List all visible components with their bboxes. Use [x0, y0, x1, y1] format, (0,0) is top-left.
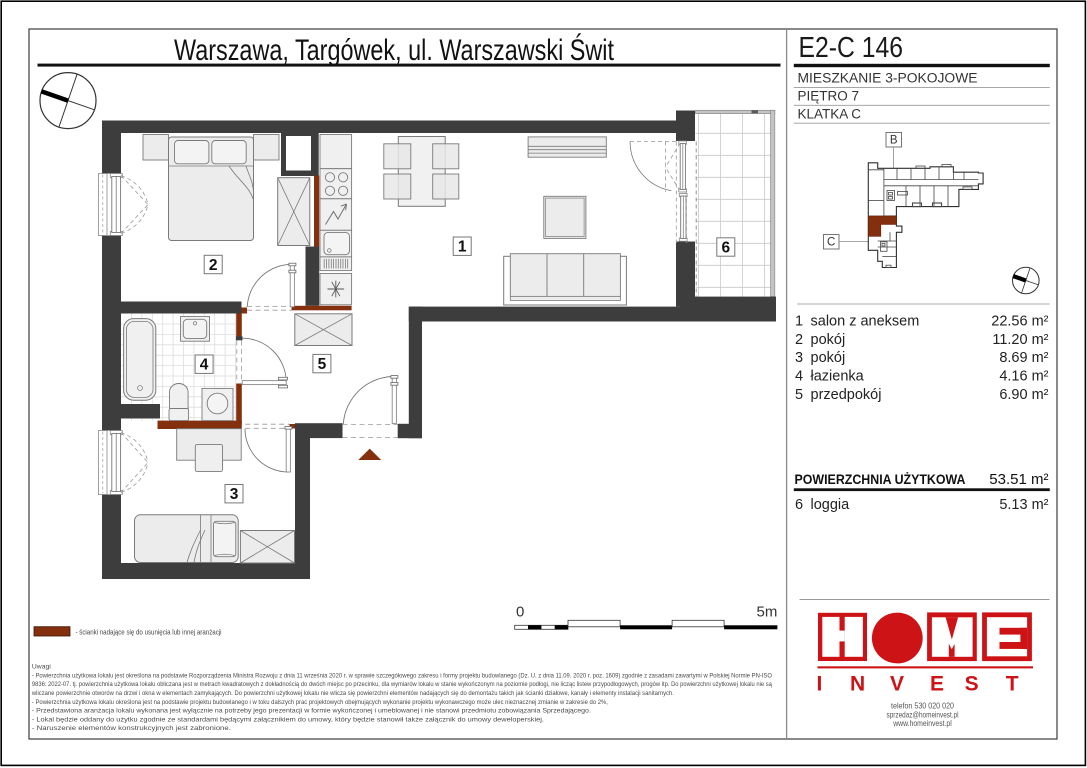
svg-text:1: 1 — [458, 239, 467, 256]
svg-text:łazienka: łazienka — [811, 369, 865, 385]
svg-text:4: 4 — [795, 369, 803, 385]
svg-text:4.16 m²: 4.16 m² — [999, 369, 1048, 385]
svg-text:2: 2 — [209, 257, 218, 274]
svg-text:6.90 m²: 6.90 m² — [999, 387, 1048, 403]
svg-text:KLATKA C: KLATKA C — [798, 107, 862, 122]
svg-text:POWIERZCHNIA UŻYTKOWA: POWIERZCHNIA UŻYTKOWA — [795, 471, 966, 487]
svg-text:- Powierzchnia użytkowa lokalu: - Powierzchnia użytkowa lokalu jest okre… — [32, 672, 772, 679]
svg-text:MIESZKANIE 3-POKOJOWE: MIESZKANIE 3-POKOJOWE — [798, 71, 978, 86]
svg-text:PIĘTRO 7: PIĘTRO 7 — [798, 89, 860, 104]
svg-text:9836: 2022-07. tj. powierzchni: 9836: 2022-07. tj. powierzchnia użytkowa… — [32, 681, 772, 688]
svg-text:3: 3 — [795, 350, 803, 366]
svg-text:0: 0 — [516, 604, 524, 621]
svg-text:www.homeinvest.pl: www.homeinvest.pl — [892, 718, 951, 728]
svg-text:2: 2 — [795, 332, 803, 348]
svg-text:B: B — [890, 135, 898, 147]
svg-text:loggia: loggia — [811, 497, 851, 513]
svg-text:5.13 m²: 5.13 m² — [999, 497, 1048, 513]
svg-text:6: 6 — [795, 497, 803, 513]
svg-text:wliczane powierzchnie otworów: wliczane powierzchnie otworów na drzwi i… — [31, 690, 674, 697]
svg-text:pokój: pokój — [811, 332, 846, 348]
svg-text:1: 1 — [795, 314, 803, 330]
svg-text:- Powierzchnia użytkowa lokalu: - Powierzchnia użytkowa lokalu określona… — [32, 699, 608, 706]
svg-text:przedpokój: przedpokój — [811, 387, 882, 403]
svg-text:5: 5 — [318, 356, 327, 373]
svg-text:Warszawa, Targówek, ul. Warsza: Warszawa, Targówek, ul. Warszawski Świt — [174, 33, 615, 67]
svg-text:- Naruszenie elementów konstru: - Naruszenie elementów konstrukcyjnych j… — [32, 725, 231, 732]
svg-text:Uwagi: Uwagi — [32, 664, 51, 671]
svg-text:E2-C 146: E2-C 146 — [799, 32, 904, 64]
svg-text:22.56 m²: 22.56 m² — [991, 314, 1048, 330]
svg-text:4: 4 — [200, 357, 209, 374]
svg-text:pokój: pokój — [811, 350, 846, 366]
svg-text:salon z aneksem: salon z aneksem — [811, 314, 920, 330]
svg-text:- ścianki nadające się do usun: - ścianki nadające się do usunięcia lub … — [76, 627, 222, 636]
svg-text:11.20 m²: 11.20 m² — [992, 332, 1048, 348]
svg-text:6: 6 — [721, 239, 730, 256]
svg-text:- Przedstawiona aranżacja loka: - Przedstawiona aranżacja lokalu wykonan… — [32, 708, 591, 715]
svg-text:53.51 m²: 53.51 m² — [989, 471, 1048, 488]
svg-text:C: C — [827, 237, 835, 249]
svg-text:8.69 m²: 8.69 m² — [999, 350, 1048, 366]
svg-text:5m: 5m — [757, 604, 778, 621]
svg-text:3: 3 — [230, 486, 239, 503]
svg-text:5: 5 — [795, 387, 803, 403]
svg-text:- Lokal będzie oddany do użytk: - Lokal będzie oddany do użytku zgodnie … — [32, 716, 544, 723]
